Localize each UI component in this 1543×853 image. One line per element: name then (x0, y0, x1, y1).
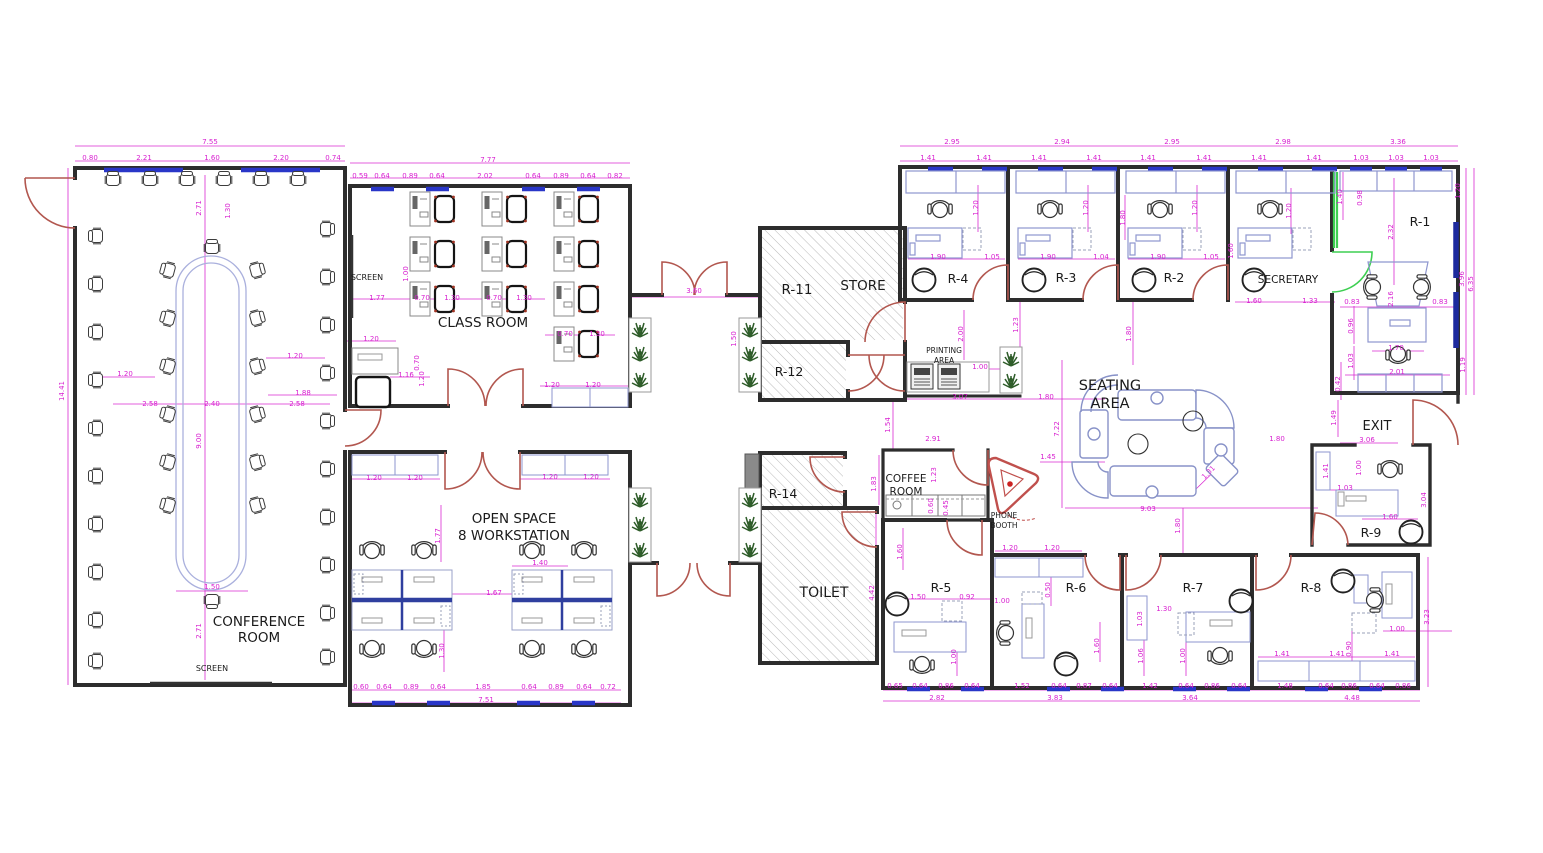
dim-text-88: 1.20 (1285, 203, 1293, 219)
dim-text-137: 0.65 (887, 682, 903, 690)
dim-text-58: 0.89 (548, 683, 564, 691)
conference-chair-8 (89, 324, 103, 340)
r2-door (1193, 265, 1228, 300)
dim-text-92: 1.40 (1336, 189, 1344, 205)
dim-text-35: 1.30 (589, 330, 605, 338)
conference-chair-36 (249, 453, 267, 472)
dim-text-108: 1.23 (1012, 317, 1020, 333)
dim-text-109: 1.00 (972, 363, 988, 371)
conference-chair-17 (321, 269, 335, 285)
dim-text-59: 0.64 (576, 683, 592, 691)
r3-door (1083, 265, 1118, 300)
room-label-room-r6: R-6 (1066, 580, 1087, 595)
dim-text-158: 0.86 (1204, 682, 1220, 690)
dim-text-103: 1.70 (1388, 344, 1404, 352)
dim-text-148: 0.64 (1051, 682, 1067, 690)
dim-text-8: 1.20 (117, 370, 133, 378)
dim-text-147: 1.52 (1014, 682, 1030, 690)
dim-text-60: 0.72 (600, 683, 616, 691)
dim-text-169: 0.86 (1341, 682, 1357, 690)
conference-chair-29 (159, 405, 177, 424)
dim-text-16: 1.50 (204, 583, 220, 591)
dim-text-49: 1.40 (532, 559, 548, 567)
conference-chair-34 (249, 357, 267, 376)
r8-door (1256, 555, 1291, 590)
dim-text-122: 0.60 (927, 498, 935, 514)
dim-text-96: 3.96 (1458, 271, 1466, 287)
room-label-class-room: CLASS ROOM (438, 315, 528, 331)
dim-text-56: 1.85 (475, 683, 491, 691)
conference-chair-18 (321, 317, 335, 333)
dim-text-91: 1.33 (1302, 297, 1318, 305)
conference-chair-3 (216, 172, 232, 186)
dim-text-84: 1.80 (1119, 210, 1127, 226)
dim-text-77: 1.03 (1423, 154, 1439, 162)
room-label-room-r14: R-14 (769, 486, 798, 501)
dim-text-30: 0.70 (414, 294, 430, 302)
dim-text-24: 0.64 (525, 172, 541, 180)
conference-chair-0 (105, 172, 121, 186)
r9-door (1312, 513, 1348, 545)
room-label-room-r4: R-4 (948, 271, 969, 286)
dim-text-93: 0.98 (1356, 190, 1364, 206)
dim-text-3: 1.60 (204, 154, 220, 162)
dim-text-113: 1.54 (884, 417, 892, 433)
room-label-phone-booth: PHONE (991, 511, 1018, 520)
room-label-room-r3: R-3 (1056, 270, 1077, 285)
conference-chair-12 (89, 516, 103, 532)
dim-text-34: 0.70 (557, 330, 573, 338)
dim-text-165: 1.00 (1389, 625, 1405, 633)
conference-entry-door (25, 178, 75, 228)
conference-chair-2 (179, 172, 195, 186)
room-label-printing-area-2: AREA (934, 356, 955, 365)
dim-text-128: 1.41 (1322, 463, 1330, 479)
dim-text-101: 0.96 (1347, 318, 1355, 334)
dim-text-20: 0.64 (374, 172, 390, 180)
dim-text-133: 1.60 (896, 544, 904, 560)
room-label-open-space: OPEN SPACE (472, 511, 557, 527)
dim-text-76: 1.03 (1388, 154, 1404, 162)
room-label-room-r12: R-12 (775, 364, 804, 379)
r12-doors (848, 355, 905, 391)
dim-text-43: 1.50 (730, 331, 738, 347)
dim-text-86: 1.90 (1150, 253, 1166, 261)
dim-text-118: 9.03 (1140, 505, 1156, 513)
dim-text-80: 1.05 (984, 253, 1000, 261)
dim-text-14: 9.00 (195, 433, 203, 449)
r6-door (1085, 555, 1120, 590)
dim-text-121: 1.23 (930, 467, 938, 483)
room-label-room-r7: R-7 (1183, 580, 1204, 595)
dim-text-136: 1.00 (950, 649, 958, 665)
exit-door (1413, 400, 1458, 445)
dim-text-168: 0.64 (1318, 682, 1334, 690)
dim-text-51: 1.30 (438, 643, 446, 659)
dim-text-104: 2.01 (1389, 368, 1405, 376)
room-label-room-r2: R-2 (1164, 270, 1185, 285)
dim-text-6: 2.71 (195, 200, 203, 216)
r5-door (947, 520, 982, 555)
dim-text-166: 3.23 (1423, 609, 1431, 625)
conference-chair-16 (321, 221, 335, 237)
conference-chair-27 (159, 309, 177, 328)
dim-text-155: 1.00 (1179, 648, 1187, 664)
dim-text-125: 4.42 (868, 585, 876, 601)
dim-text-159: 0.64 (1231, 682, 1247, 690)
conference-chair-11 (89, 468, 103, 484)
room-label-screen-conference: SCREEN (196, 664, 228, 673)
dim-text-171: 0.86 (1395, 682, 1411, 690)
room-label-screen-classroom: SCREEN (351, 273, 383, 282)
dim-text-74: 3.36 (1390, 138, 1406, 146)
dim-text-82: 1.90 (1040, 253, 1056, 261)
workstation-cluster-2 (512, 542, 612, 658)
dim-text-78: 1.20 (972, 200, 980, 216)
conference-chair-5 (290, 172, 306, 186)
dim-text-107: 2.00 (957, 326, 965, 342)
dim-text-52: 0.60 (353, 683, 369, 691)
classroom-double-door (448, 369, 523, 406)
shaft-block (745, 454, 759, 488)
dim-text-18: 7.77 (480, 156, 496, 164)
dim-text-46: 1.20 (542, 473, 558, 481)
dim-text-143: 1.20 (1044, 544, 1060, 552)
room-label-phone-booth-2: BOOTH (990, 521, 1017, 530)
openspace-double-door (445, 452, 520, 489)
dim-text-25: 0.89 (553, 172, 569, 180)
dim-text-154: 1.06 (1137, 648, 1145, 664)
dim-text-100: 2.16 (1387, 291, 1395, 307)
dim-text-28: 1.00 (402, 266, 410, 282)
dim-text-124: 1.83 (870, 476, 878, 492)
dim-text-10: 2.40 (204, 400, 220, 408)
dim-text-12: 1.20 (287, 352, 303, 360)
conference-chair-26 (159, 261, 177, 280)
dim-text-55: 0.64 (430, 683, 446, 691)
conference-chair-31 (159, 496, 177, 515)
dim-text-142: 1.20 (1002, 544, 1018, 552)
dim-text-162: 1.41 (1329, 650, 1345, 658)
dim-text-117: 1.80 (1269, 435, 1285, 443)
dim-text-79: 1.90 (930, 253, 946, 261)
dim-text-170: 0.64 (1369, 682, 1385, 690)
corridor-bottom-double-door (657, 563, 730, 596)
dim-text-48: 1.77 (434, 528, 442, 544)
dim-text-40: 1.20 (544, 381, 560, 389)
room-label-open-space-2: 8 WORKSTATION (458, 528, 570, 544)
room-label-room-r9: R-9 (1361, 525, 1382, 540)
dim-text-97: 6.35 (1467, 276, 1475, 292)
dim-text-81: 1.20 (1082, 200, 1090, 216)
r6-furniture (995, 558, 1083, 676)
dim-text-36: 1.20 (363, 335, 379, 343)
dim-text-5: 0.74 (325, 154, 341, 162)
dim-text-65: 2.94 (1054, 138, 1070, 146)
dim-text-17: 2.71 (195, 623, 203, 639)
dim-text-89: 1.60 (1227, 243, 1235, 259)
dim-text-38: 1.16 (398, 371, 414, 379)
conference-chair-28 (159, 357, 177, 376)
dim-text-105: 0.42 (1334, 376, 1342, 392)
conference-chair-13 (89, 564, 103, 580)
room-label-coffee-room-2: ROOM (890, 486, 923, 498)
dim-text-87: 1.05 (1203, 253, 1219, 261)
dim-text-42: 3.60 (686, 287, 702, 295)
dim-text-31: 1.30 (444, 294, 460, 302)
dim-text-145: 1.00 (994, 597, 1010, 605)
dim-text-85: 1.20 (1191, 200, 1199, 216)
dim-text-135: 0.92 (959, 593, 975, 601)
dim-text-153: 1.03 (1136, 611, 1144, 627)
room-label-exit: EXIT (1363, 419, 1392, 434)
dim-text-26: 0.64 (580, 172, 596, 180)
dim-text-94: 2.32 (1387, 224, 1395, 240)
dim-text-44: 1.20 (366, 474, 382, 482)
dim-text-114: 7.22 (1053, 421, 1061, 437)
coffee-door (953, 450, 988, 485)
dim-text-150: 0.64 (1102, 682, 1118, 690)
conference-chair-24 (321, 605, 335, 621)
dim-text-7: 1.30 (224, 203, 232, 219)
dim-text-152: 1.30 (1156, 605, 1172, 613)
dim-text-4: 2.20 (273, 154, 289, 162)
dim-text-54: 0.89 (403, 683, 419, 691)
dim-text-157: 0.64 (1178, 682, 1194, 690)
dim-text-132: 3.04 (1420, 492, 1428, 508)
dim-text-37: 0.70 (413, 355, 421, 371)
dim-text-29: 1.77 (369, 294, 385, 302)
dim-text-139: 0.86 (938, 682, 954, 690)
dim-text-19: 0.59 (352, 172, 368, 180)
dim-text-2: 2.21 (136, 154, 152, 162)
dim-text-160: 3.64 (1182, 694, 1198, 702)
conference-chair-4 (253, 172, 269, 186)
dim-text-9: 2.58 (142, 400, 158, 408)
dim-text-131: 1.60 (1382, 513, 1398, 521)
dim-text-141: 2.82 (929, 694, 945, 702)
r4-door (973, 265, 1008, 300)
dim-text-111: 1.80 (1038, 393, 1054, 401)
workstation-cluster-1 (352, 542, 452, 658)
dim-text-134: 1.50 (910, 593, 926, 601)
conference-chair-25 (321, 649, 335, 665)
dim-text-68: 2.95 (1164, 138, 1180, 146)
dim-text-95: 1.20 (1454, 183, 1462, 199)
room-label-seating-area: SEATING (1079, 378, 1141, 394)
conference-side-door (345, 410, 381, 446)
room-label-conference-room: CONFERENCE (213, 614, 305, 630)
dim-text-62: 2.95 (944, 138, 960, 146)
teacher-desk (352, 348, 398, 407)
conference-chair-15 (89, 653, 103, 669)
dim-text-50: 1.67 (486, 589, 502, 597)
room-label-secretary: SECRETARY (1258, 274, 1319, 286)
dim-text-144: 0.50 (1044, 582, 1052, 598)
conference-chair-35 (249, 405, 267, 424)
conference-chair-7 (89, 276, 103, 292)
dim-text-138: 0.64 (912, 682, 928, 690)
dim-text-71: 2.98 (1275, 138, 1291, 146)
dim-text-156: 1.42 (1142, 682, 1158, 690)
dim-text-83: 1.04 (1093, 253, 1109, 261)
conference-chair-20 (321, 413, 335, 429)
dim-text-98: 0.83 (1344, 298, 1360, 306)
dim-text-45: 1.20 (407, 474, 423, 482)
dim-text-126: 1.49 (1330, 410, 1338, 426)
dim-text-151: 3.83 (1047, 694, 1063, 702)
dim-text-119: 1.80 (1174, 518, 1182, 534)
dim-text-39: 1.20 (418, 371, 426, 387)
dim-text-64: 1.41 (976, 154, 992, 162)
dim-text-67: 1.41 (1086, 154, 1102, 162)
dim-text-164: 0.90 (1345, 641, 1353, 657)
dim-text-112: 1.80 (1125, 326, 1133, 342)
conference-chair-33 (249, 309, 267, 328)
conference-chair-32 (249, 261, 267, 280)
room-label-room-r1: R-1 (1410, 214, 1431, 229)
conference-chair-30 (159, 453, 177, 472)
dim-text-47: 1.20 (583, 473, 599, 481)
dim-text-1: 0.80 (82, 154, 98, 162)
dim-text-110: 3.07 (952, 393, 968, 401)
dim-text-115: 1.45 (1040, 453, 1056, 461)
dim-text-70: 1.41 (1196, 154, 1212, 162)
dim-text-102: 1.03 (1347, 353, 1355, 369)
dim-text-123: 0.45 (942, 500, 950, 516)
dim-text-41: 1.20 (585, 381, 601, 389)
conference-chair-38 (204, 240, 220, 254)
conference-chair-6 (89, 228, 103, 244)
room-label-store: STORE (840, 278, 885, 294)
dim-text-99: 0.83 (1432, 298, 1448, 306)
dim-text-120: 2.91 (925, 435, 941, 443)
dim-text-140: 0.64 (964, 682, 980, 690)
dim-text-61: 7.51 (478, 696, 494, 704)
dim-text-129: 1.00 (1355, 460, 1363, 476)
dim-text-21: 0.89 (402, 172, 418, 180)
dim-text-69: 1.41 (1140, 154, 1156, 162)
conference-chair-10 (89, 420, 103, 436)
loose-chairs (89, 172, 335, 669)
conference-chair-39 (204, 595, 220, 609)
room-label-toilet: TOILET (799, 585, 849, 601)
dim-text-57: 0.64 (521, 683, 537, 691)
room-label-conference-room-2: ROOM (238, 630, 280, 646)
dim-text-66: 1.41 (1031, 154, 1047, 162)
dim-text-146: 1.60 (1093, 638, 1101, 654)
floor-plan-canvas: CONFERENCEROOMSCREENSCREENCLASS ROOMOPEN… (0, 0, 1543, 853)
dim-text-130: 1.03 (1337, 484, 1353, 492)
dim-text-172: 4.48 (1344, 694, 1360, 702)
room-label-room-r11: R-11 (782, 282, 813, 298)
dim-text-0: 7.55 (202, 138, 218, 146)
conference-chair-19 (321, 365, 335, 381)
dim-text-72: 1.41 (1251, 154, 1267, 162)
dim-text-63: 1.41 (920, 154, 936, 162)
conference-chair-23 (321, 557, 335, 573)
dim-text-73: 1.41 (1306, 154, 1322, 162)
dim-text-13: 1.88 (295, 389, 311, 397)
dim-text-11: 2.58 (289, 400, 305, 408)
conference-chair-9 (89, 372, 103, 388)
conference-chair-21 (321, 461, 335, 477)
dim-text-167: 1.48 (1277, 682, 1293, 690)
r7-door (1126, 555, 1161, 590)
room-label-room-r8: R-8 (1301, 580, 1322, 595)
r7-furniture (1127, 590, 1253, 665)
dim-text-23: 2.02 (477, 172, 493, 180)
dim-text-161: 1.41 (1274, 650, 1290, 658)
dim-text-75: 1.03 (1353, 154, 1369, 162)
conference-chair-14 (89, 612, 103, 628)
dim-text-32: 0.70 (486, 294, 502, 302)
dim-text-163: 1.41 (1384, 650, 1400, 658)
dim-text-15: 14.41 (58, 381, 66, 401)
conference-chair-22 (321, 509, 335, 525)
room-label-room-r5: R-5 (931, 580, 952, 595)
dim-text-106: 1.19 (1459, 357, 1467, 373)
room-label-printing-area: PRINTING (926, 346, 962, 355)
conference-chair-37 (249, 496, 267, 515)
dim-text-53: 0.64 (376, 683, 392, 691)
floor-plan-drawing: CONFERENCEROOMSCREENSCREENCLASS ROOMOPEN… (0, 0, 1543, 853)
dim-text-149: 0.87 (1076, 682, 1092, 690)
dim-text-27: 0.82 (607, 172, 623, 180)
coffee-counter (886, 495, 985, 516)
dim-text-33: 1.30 (516, 294, 532, 302)
room-label-coffee-room: COFFEE (886, 473, 927, 485)
conference-chair-1 (142, 172, 158, 186)
dim-text-127: 3.06 (1359, 436, 1375, 444)
conference-table (176, 256, 246, 590)
dim-text-22: 0.64 (429, 172, 445, 180)
dim-text-90: 1.60 (1246, 297, 1262, 305)
room-label-seating-area-2: AREA (1090, 396, 1129, 412)
